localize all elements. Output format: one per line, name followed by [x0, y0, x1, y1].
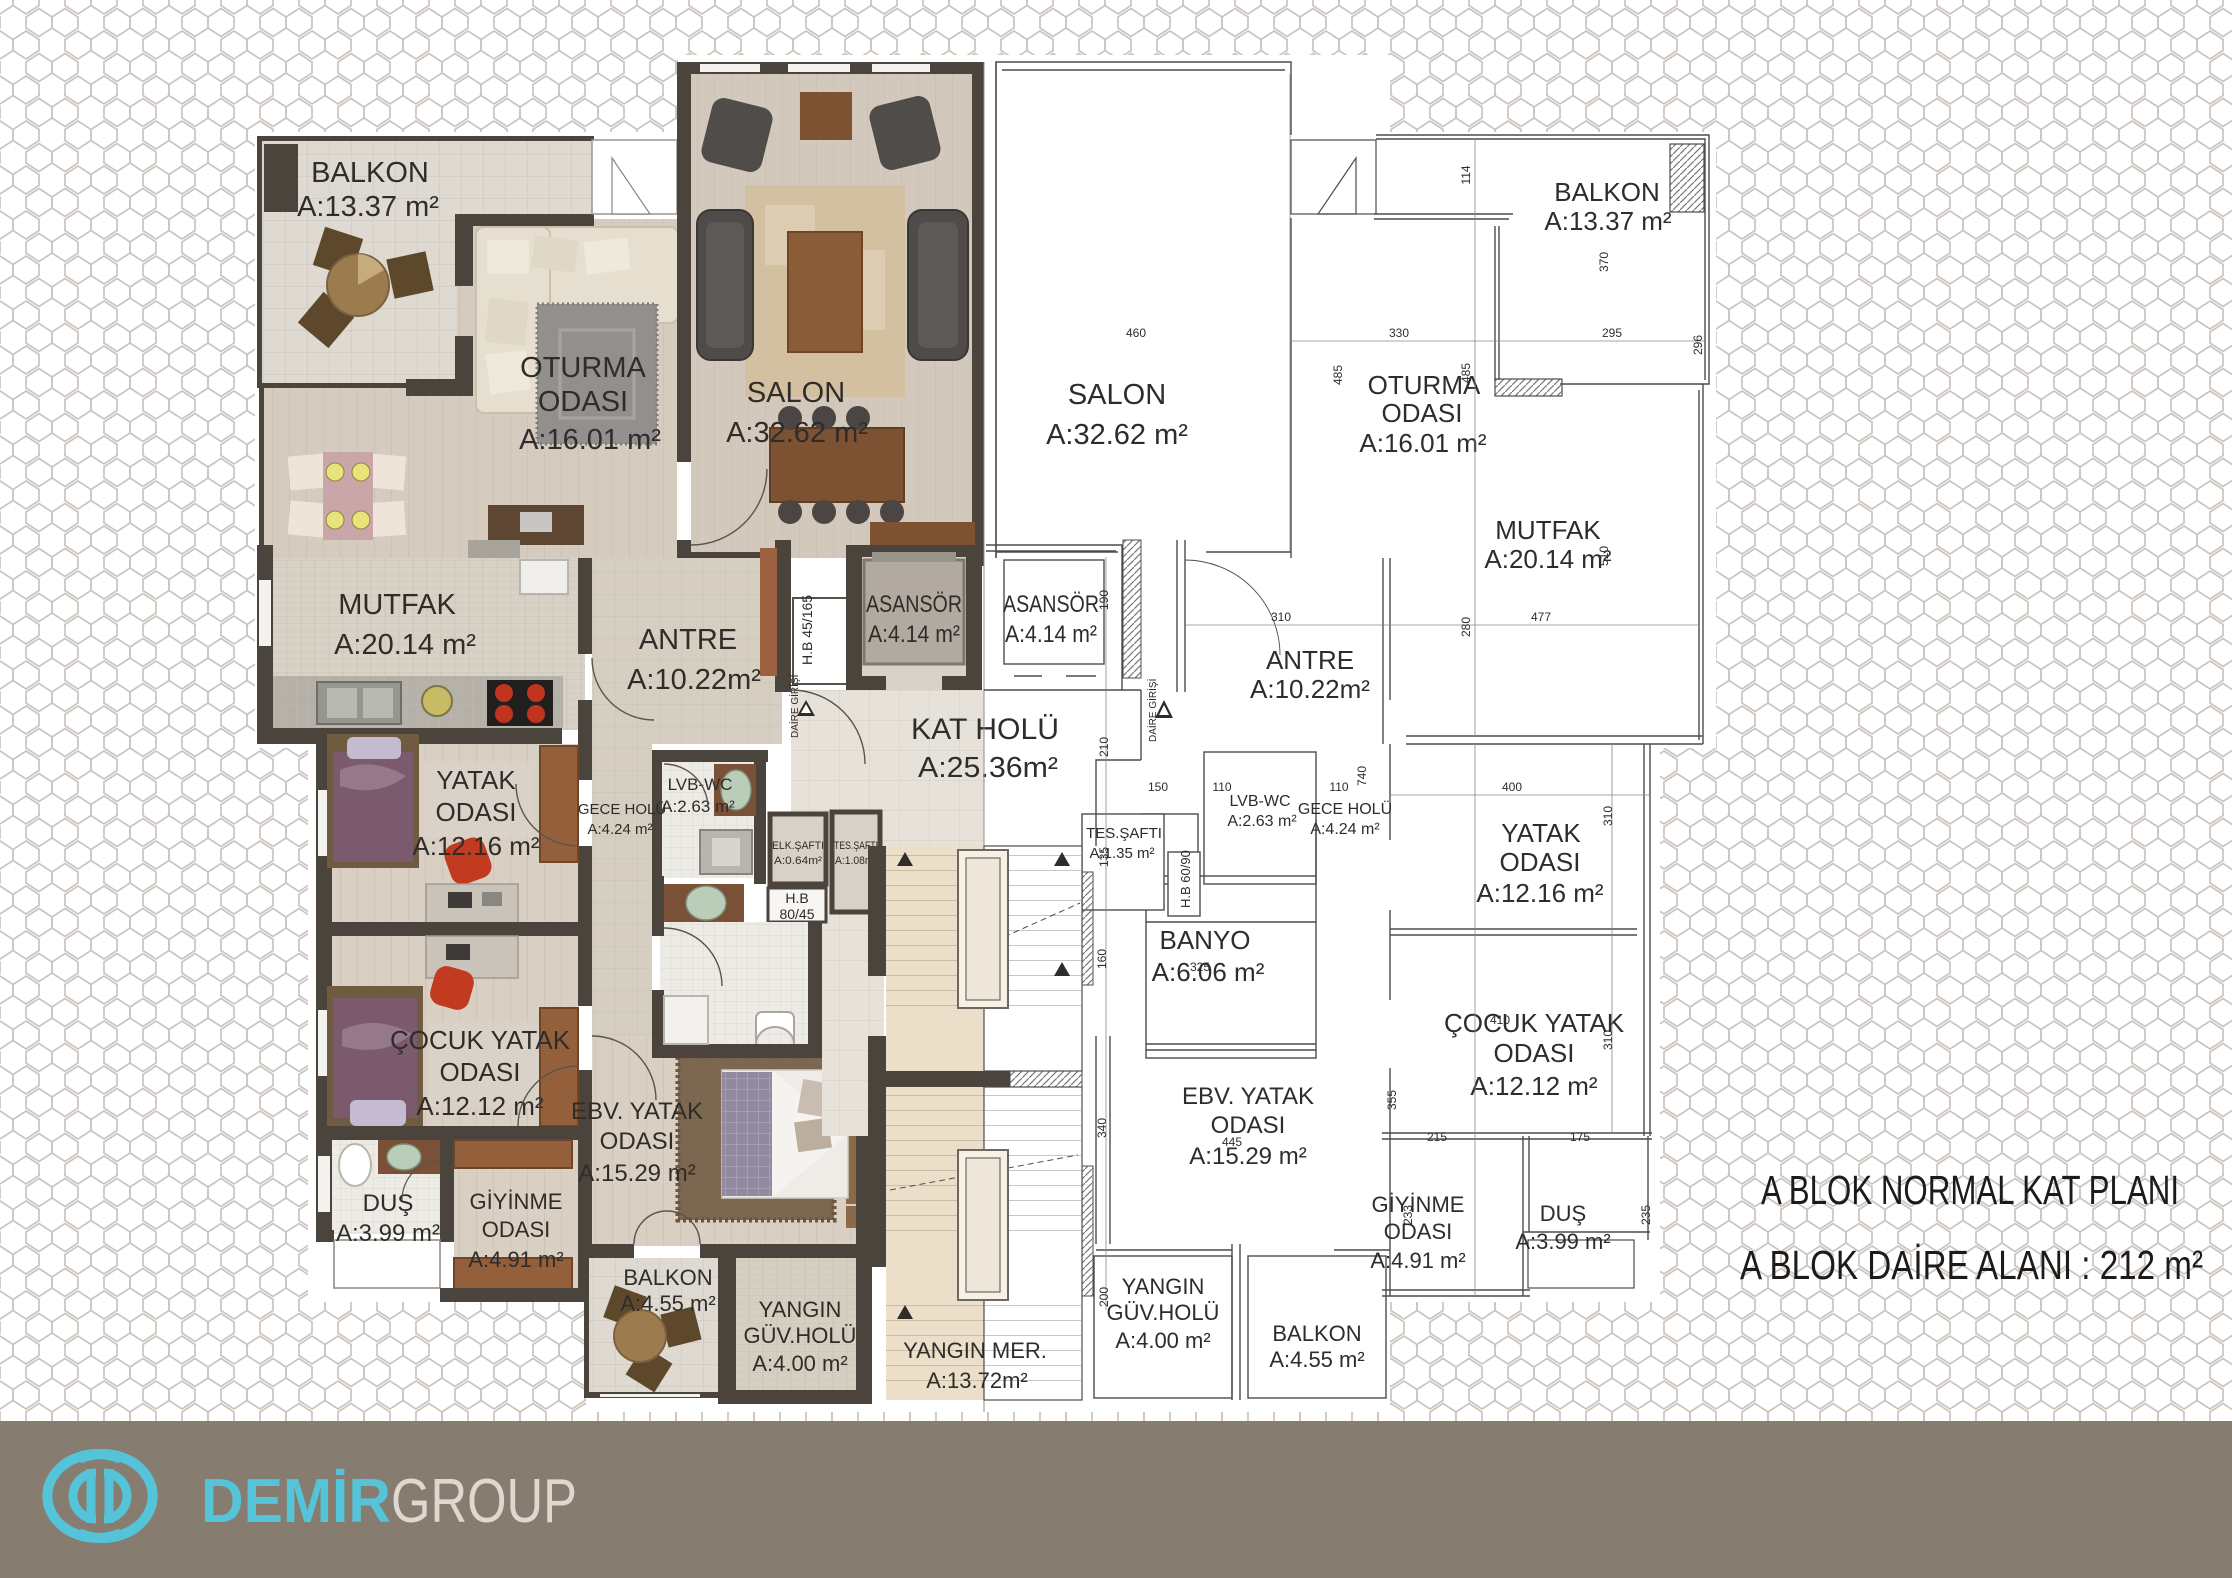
svg-text:GECE HOLÜ: GECE HOLÜ: [578, 800, 666, 818]
svg-text:BALKON: BALKON: [623, 1265, 712, 1290]
svg-text:370: 370: [1597, 252, 1611, 272]
svg-text:ODASI: ODASI: [1500, 847, 1581, 877]
svg-text:A:16.01 m²: A:16.01 m²: [1359, 428, 1487, 458]
svg-text:YANGIN: YANGIN: [1122, 1274, 1205, 1299]
svg-text:235: 235: [1639, 1205, 1653, 1225]
svg-text:110: 110: [1212, 780, 1231, 794]
svg-text:A:10.22m²: A:10.22m²: [627, 664, 761, 696]
svg-text:A BLOK NORMAL KAT PLANI: A BLOK NORMAL KAT PLANI: [1761, 1167, 2179, 1213]
svg-text:135: 135: [1097, 847, 1111, 867]
svg-text:310: 310: [1601, 806, 1615, 826]
svg-text:A:3.99 m²: A:3.99 m²: [1515, 1229, 1610, 1254]
svg-text:DUŞ: DUŞ: [1540, 1201, 1586, 1226]
svg-text:200: 200: [1097, 1287, 1111, 1307]
svg-text:DAİRE GİRİŞİ: DAİRE GİRİŞİ: [1146, 679, 1159, 742]
svg-text:A:15.29 m²: A:15.29 m²: [1189, 1143, 1306, 1170]
svg-text:A:15.29 m²: A:15.29 m²: [578, 1160, 695, 1187]
svg-text:GİYİNME: GİYİNME: [1372, 1192, 1465, 1217]
svg-text:A:12.12 m²: A:12.12 m²: [416, 1091, 544, 1121]
svg-text:GROUP: GROUP: [391, 1467, 577, 1536]
svg-text:ODASI: ODASI: [440, 1057, 521, 1087]
svg-text:EBV. YATAK: EBV. YATAK: [571, 1098, 703, 1125]
svg-text:MUTFAK: MUTFAK: [338, 589, 456, 621]
svg-text:ODASI: ODASI: [1382, 398, 1463, 428]
svg-text:ASANSÖR: ASANSÖR: [1003, 591, 1099, 618]
svg-text:A:4.14 m²: A:4.14 m²: [1005, 621, 1097, 648]
svg-text:BALKON: BALKON: [311, 157, 429, 189]
svg-text:YATAK: YATAK: [436, 765, 516, 795]
svg-text:310: 310: [1271, 610, 1291, 624]
svg-text:A:2.63 m²: A:2.63 m²: [1227, 813, 1297, 830]
svg-text:150: 150: [1148, 780, 1168, 794]
svg-text:485: 485: [1459, 363, 1473, 383]
svg-text:215: 215: [1427, 1130, 1447, 1144]
svg-text:A:10.22m²: A:10.22m²: [1250, 674, 1370, 704]
svg-text:160: 160: [1095, 949, 1109, 969]
svg-text:H.B: H.B: [785, 890, 808, 906]
svg-text:A:32.62 m²: A:32.62 m²: [726, 417, 868, 449]
svg-text:296: 296: [1691, 335, 1705, 355]
svg-text:A:3.99 m²: A:3.99 m²: [336, 1220, 440, 1247]
svg-text:A:32.62 m²: A:32.62 m²: [1046, 419, 1188, 451]
svg-text:A:4.00 m²: A:4.00 m²: [1115, 1328, 1210, 1353]
svg-text:TES.ŞAFTI: TES.ŞAFTI: [1086, 825, 1162, 842]
svg-text:A:13.37 m²: A:13.37 m²: [1544, 206, 1672, 236]
svg-text:175: 175: [1570, 1130, 1590, 1144]
svg-text:310: 310: [1601, 1030, 1615, 1050]
svg-text:410: 410: [1490, 1013, 1510, 1027]
svg-text:A:4.91 m²: A:4.91 m²: [1370, 1248, 1465, 1273]
svg-text:KAT HOLÜ: KAT HOLÜ: [911, 713, 1059, 746]
svg-text:SALON: SALON: [1068, 379, 1166, 411]
svg-text:ÇOCUK YATAK: ÇOCUK YATAK: [390, 1025, 571, 1055]
svg-text:A:25.36m²: A:25.36m²: [918, 752, 1058, 784]
svg-text:BANYO: BANYO: [1159, 925, 1250, 955]
svg-text:295: 295: [1602, 326, 1622, 340]
svg-text:340: 340: [1095, 1118, 1109, 1138]
svg-text:ÇOCUK YATAK: ÇOCUK YATAK: [1444, 1008, 1625, 1038]
svg-text:YANGIN MER.: YANGIN MER.: [903, 1338, 1047, 1363]
svg-text:DAİRE GİRİŞİ: DAİRE GİRİŞİ: [788, 675, 801, 738]
svg-text:190: 190: [1097, 590, 1111, 610]
svg-text:A:20.14 m²: A:20.14 m²: [1484, 544, 1612, 574]
svg-text:GÜV.HOLÜ: GÜV.HOLÜ: [1107, 1300, 1220, 1325]
svg-text:A BLOK DAİRE ALANI : 212 m²: A BLOK DAİRE ALANI : 212 m²: [1740, 1242, 2203, 1288]
svg-text:MUTFAK: MUTFAK: [1495, 515, 1601, 545]
svg-text:ODASI: ODASI: [600, 1128, 675, 1155]
svg-text:355: 355: [1385, 1090, 1399, 1110]
svg-text:DUŞ: DUŞ: [363, 1190, 414, 1217]
svg-text:GECE HOLÜ: GECE HOLÜ: [1298, 800, 1392, 818]
svg-text:ODASI: ODASI: [482, 1217, 550, 1242]
svg-text:GÜV.HOLÜ: GÜV.HOLÜ: [744, 1323, 857, 1348]
svg-text:A:12.16 m²: A:12.16 m²: [1476, 878, 1604, 908]
svg-text:SALON: SALON: [747, 377, 845, 409]
svg-text:A:4.24 m²: A:4.24 m²: [587, 821, 652, 838]
svg-text:ASANSÖR: ASANSÖR: [866, 591, 962, 618]
svg-text:A:4.91 m²: A:4.91 m²: [468, 1247, 563, 1272]
svg-text:LVB-WC: LVB-WC: [668, 775, 733, 794]
svg-text:460: 460: [1126, 326, 1146, 340]
svg-text:477: 477: [1531, 610, 1551, 624]
svg-text:A:13.37 m²: A:13.37 m²: [297, 191, 439, 223]
svg-text:H.B 60/90: H.B 60/90: [1178, 850, 1193, 908]
svg-text:ODASI: ODASI: [1384, 1219, 1452, 1244]
svg-text:ODASI: ODASI: [538, 386, 628, 418]
svg-text:A:4.55 m²: A:4.55 m²: [620, 1291, 715, 1316]
svg-text:ODASI: ODASI: [436, 797, 517, 827]
svg-text:ODASI: ODASI: [1494, 1038, 1575, 1068]
svg-text:ELK.ŞAFTI: ELK.ŞAFTI: [772, 840, 824, 852]
svg-text:210: 210: [1097, 737, 1111, 757]
svg-text:LVB-WC: LVB-WC: [1229, 793, 1290, 810]
svg-text:325: 325: [1190, 960, 1210, 974]
svg-text:110: 110: [1329, 780, 1348, 794]
svg-text:A:20.14 m²: A:20.14 m²: [334, 629, 476, 661]
svg-text:A:4.24 m²: A:4.24 m²: [1310, 821, 1380, 838]
svg-text:OTURMA: OTURMA: [520, 352, 646, 384]
svg-text:BALKON: BALKON: [1554, 177, 1660, 207]
svg-text:BALKON: BALKON: [1272, 1321, 1361, 1346]
svg-text:A:0.64m²: A:0.64m²: [774, 855, 822, 867]
svg-text:330: 330: [1389, 326, 1409, 340]
svg-text:400: 400: [1502, 780, 1522, 794]
svg-text:510: 510: [1597, 546, 1611, 566]
svg-text:A:16.01 m²: A:16.01 m²: [519, 424, 661, 456]
svg-text:A:12.12 m²: A:12.12 m²: [1470, 1071, 1598, 1101]
svg-text:A:4.00 m²: A:4.00 m²: [752, 1351, 847, 1376]
svg-text:445: 445: [1222, 1135, 1242, 1149]
svg-text:H.B 45/165: H.B 45/165: [799, 595, 815, 665]
svg-text:A:13.72m²: A:13.72m²: [926, 1368, 1028, 1393]
svg-text:YATAK: YATAK: [1501, 818, 1581, 848]
svg-text:EBV. YATAK: EBV. YATAK: [1182, 1083, 1314, 1110]
svg-text:740: 740: [1355, 766, 1369, 786]
svg-text:A:4.55 m²: A:4.55 m²: [1269, 1347, 1364, 1372]
svg-text:A:4.14 m²: A:4.14 m²: [868, 621, 960, 648]
svg-text:280: 280: [1459, 617, 1473, 637]
svg-text:ANTRE: ANTRE: [1266, 645, 1354, 675]
svg-text:233: 233: [1401, 1205, 1415, 1225]
svg-text:A:2.63 m²: A:2.63 m²: [661, 797, 735, 816]
svg-text:485: 485: [1331, 365, 1345, 385]
svg-text:A:12.16 m²: A:12.16 m²: [412, 831, 540, 861]
svg-text:ANTRE: ANTRE: [639, 624, 737, 656]
svg-text:GİYİNME: GİYİNME: [470, 1189, 563, 1214]
svg-text:DEMİR: DEMİR: [201, 1467, 391, 1536]
svg-text:YANGIN: YANGIN: [759, 1297, 842, 1322]
svg-text:114: 114: [1459, 165, 1473, 184]
svg-text:80/45: 80/45: [779, 906, 814, 922]
